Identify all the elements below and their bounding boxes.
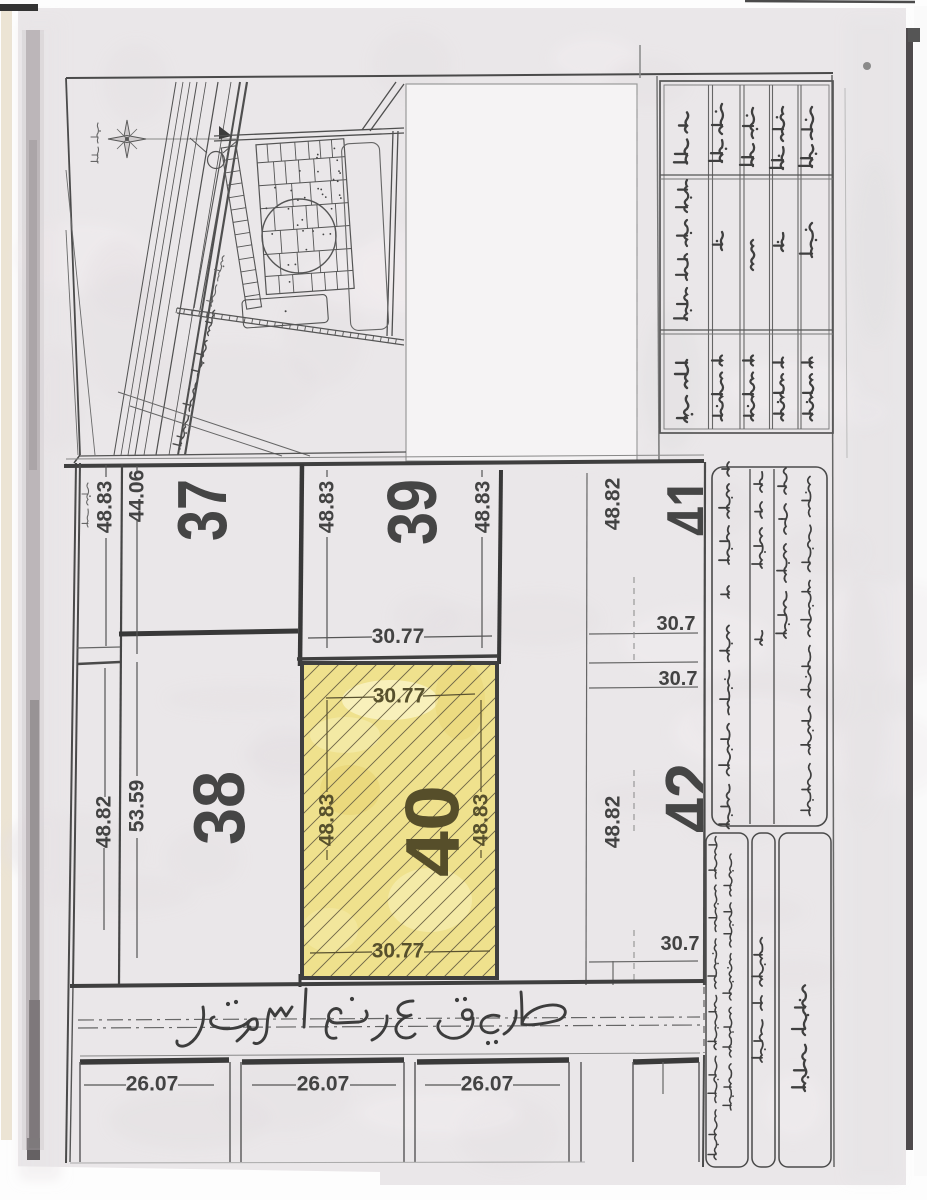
svg-text:48.83: 48.83 <box>316 794 339 847</box>
svg-text:30.77: 30.77 <box>373 685 426 708</box>
svg-text:48.83: 48.83 <box>470 794 493 847</box>
svg-text:39: 39 <box>373 479 451 545</box>
svg-text:38: 38 <box>180 771 260 845</box>
svg-text:48.83: 48.83 <box>472 481 495 534</box>
svg-text:26.07: 26.07 <box>297 1073 350 1096</box>
svg-text:30.7: 30.7 <box>661 933 700 955</box>
svg-text:48.82: 48.82 <box>602 478 625 531</box>
svg-text:30.77: 30.77 <box>372 625 425 648</box>
svg-text:30.77: 30.77 <box>372 940 425 963</box>
svg-text:30.7: 30.7 <box>659 668 698 690</box>
svg-text:30.7: 30.7 <box>657 613 696 635</box>
svg-text:44.06: 44.06 <box>126 470 149 523</box>
svg-text:48.83: 48.83 <box>94 481 117 534</box>
svg-text:53.59: 53.59 <box>126 780 149 833</box>
svg-text:40: 40 <box>391 785 476 877</box>
svg-text:48.82: 48.82 <box>602 796 625 849</box>
svg-text:37: 37 <box>163 479 241 541</box>
svg-text:48.82: 48.82 <box>93 796 116 849</box>
svg-text:26.07: 26.07 <box>461 1073 514 1096</box>
svg-text:48.83: 48.83 <box>316 481 339 534</box>
svg-text:26.07: 26.07 <box>126 1073 179 1096</box>
